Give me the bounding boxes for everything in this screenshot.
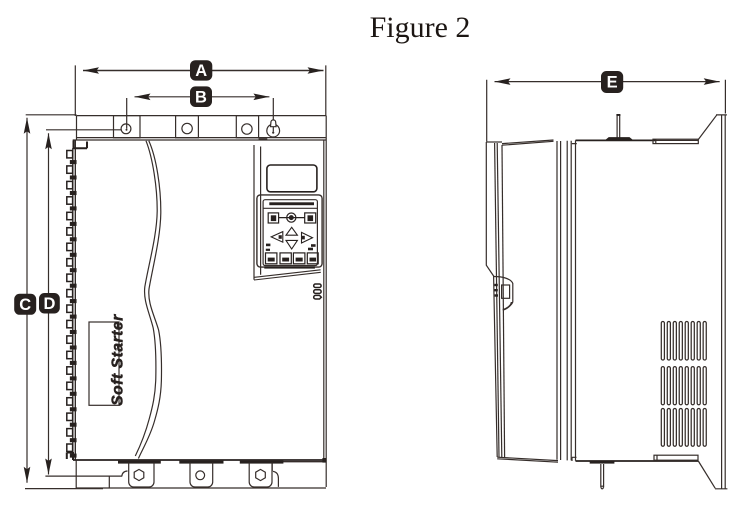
svg-text:Soft Starter: Soft Starter <box>110 314 127 406</box>
svg-text:E: E <box>607 74 618 92</box>
svg-text:Figure 2: Figure 2 <box>370 11 471 44</box>
svg-text:D: D <box>43 295 55 313</box>
svg-text:B: B <box>195 88 207 106</box>
svg-text:A: A <box>195 62 207 80</box>
svg-text:C: C <box>19 296 31 314</box>
